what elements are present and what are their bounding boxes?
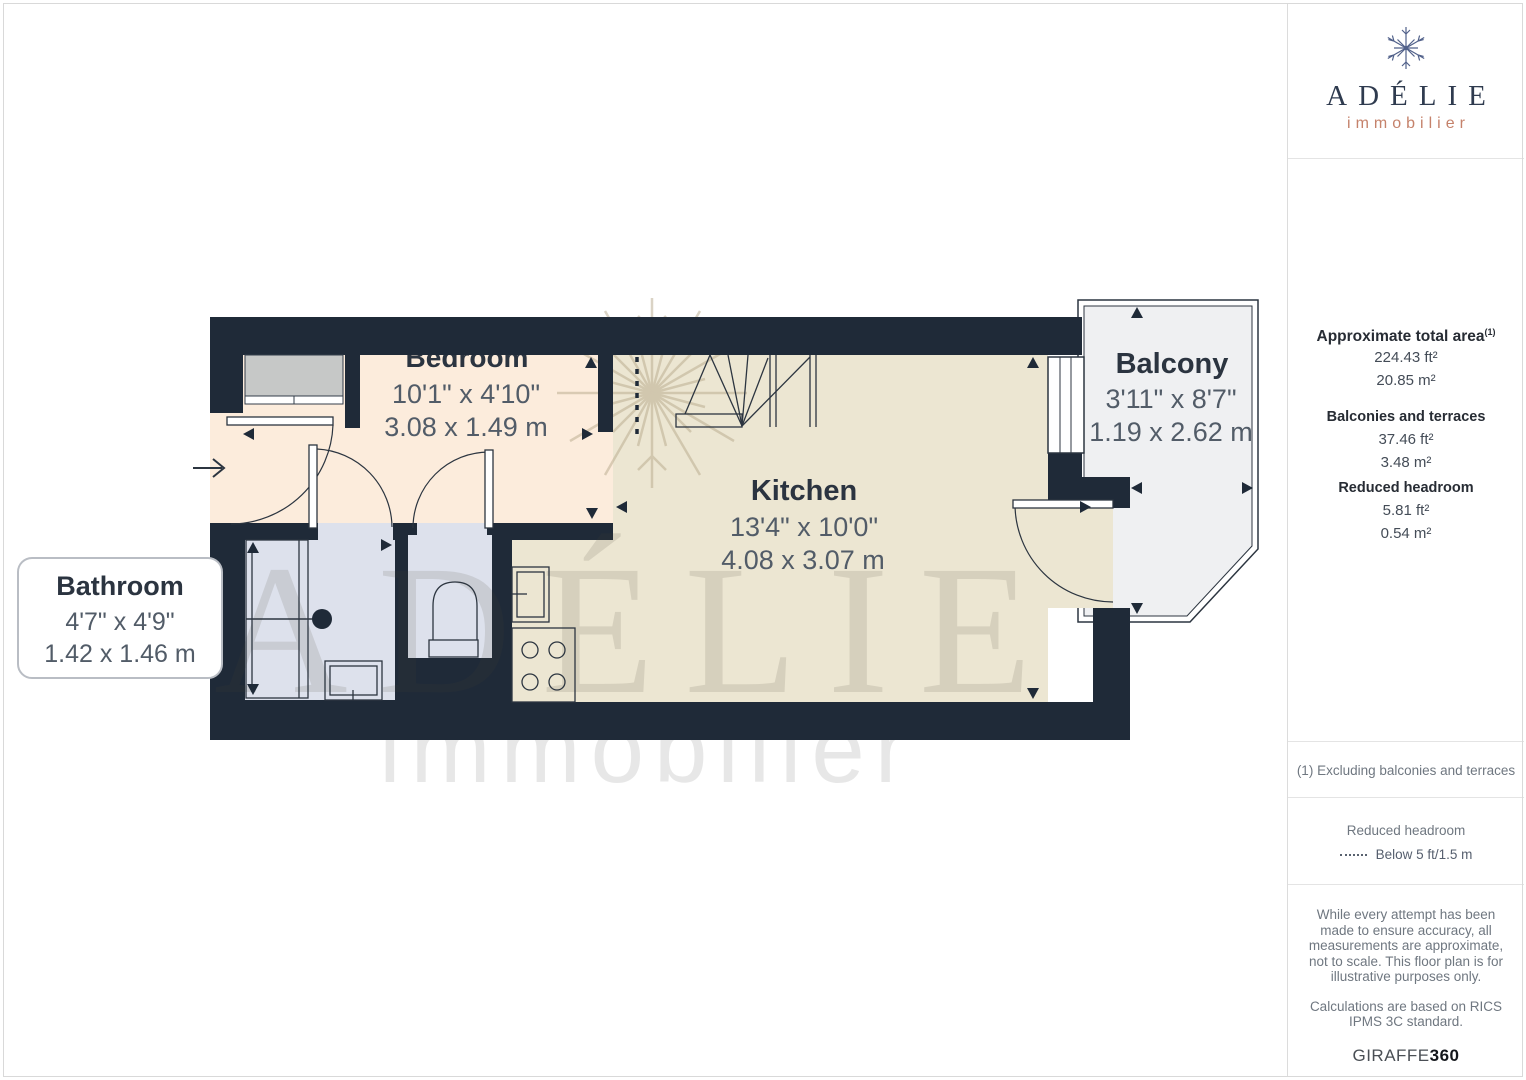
legend-title: Reduced headroom [1288, 823, 1524, 838]
disclaimer-section: While every attempt has been made to ens… [1288, 885, 1524, 1077]
reduced-headroom-heading: Reduced headroom [1288, 480, 1524, 496]
kitchen-label: Kitchen [751, 475, 857, 507]
kitchen-balcony-window [1048, 357, 1084, 453]
info-sidebar: ADÉLIE immobilier Approximate total area… [1287, 3, 1524, 1077]
reduced-headroom-ft: 5.81 ft² [1288, 499, 1524, 522]
floorplan-svg: ADÉLIE immobilier Bedroom 10'1" x 4'10" … [0, 0, 1286, 1080]
bedroom-dim-metric: 3.08 x 1.49 m [384, 412, 548, 442]
footnote-text: (1) Excluding balconies and terraces [1288, 763, 1524, 778]
brand-header: ADÉLIE immobilier [1288, 3, 1524, 159]
reduced-headroom-m: 0.54 m² [1288, 522, 1524, 545]
balconies-ft: 37.46 ft² [1288, 428, 1524, 451]
bedroom-dim-imperial: 10'1" x 4'10" [392, 379, 540, 409]
bathroom-callout: Bathroom 4'7" x 4'9" 1.42 x 1.46 m [18, 558, 222, 678]
disclaimer-text-1: While every attempt has been made to ens… [1300, 907, 1512, 985]
dotted-line-sample [1340, 854, 1367, 856]
footnote-marker: (1) [1484, 327, 1495, 337]
bathroom-dim-imperial: 4'7" x 4'9" [65, 608, 174, 636]
total-area-m: 20.85 m² [1288, 369, 1524, 392]
area-summary: Approximate total area(1) 224.43 ft² 20.… [1288, 159, 1524, 742]
closet-fixture [245, 355, 343, 404]
balcony-dim-metric: 1.19 x 2.62 m [1089, 417, 1253, 447]
kitchen-dim-imperial: 13'4" x 10'0" [730, 512, 878, 542]
balconies-heading: Balconies and terraces [1288, 409, 1524, 425]
legend-section: Reduced headroom Below 5 ft/1.5 m [1288, 798, 1524, 885]
legend-item-label: Below 5 ft/1.5 m [1376, 847, 1473, 862]
total-area-ft: 224.43 ft² [1288, 346, 1524, 369]
total-area-heading: Approximate total area(1) [1288, 327, 1524, 346]
kitchen-dim-metric: 4.08 x 3.07 m [721, 545, 885, 575]
floorplan-canvas: ADÉLIE immobilier Bedroom 10'1" x 4'10" … [0, 0, 1286, 1080]
snowflake-icon [1383, 25, 1429, 71]
balcony-dim-imperial: 3'11" x 8'7" [1105, 384, 1236, 414]
balcony-label: Balcony [1116, 348, 1229, 380]
giraffe360-logo: GIRAFFE360 [1288, 1046, 1524, 1066]
brand-tagline: immobilier [1288, 115, 1524, 133]
bathroom-label: Bathroom [56, 571, 184, 601]
footnote-section: (1) Excluding balconies and terraces [1288, 742, 1524, 798]
brand-name: ADÉLIE [1288, 80, 1524, 113]
balconies-m: 3.48 m² [1288, 451, 1524, 474]
floorplan-page: ADÉLIE immobilier Bedroom 10'1" x 4'10" … [0, 0, 1526, 1080]
disclaimer-text-2: Calculations are based on RICS IPMS 3C s… [1300, 999, 1512, 1030]
bathroom-dim-metric: 1.42 x 1.46 m [44, 640, 195, 668]
